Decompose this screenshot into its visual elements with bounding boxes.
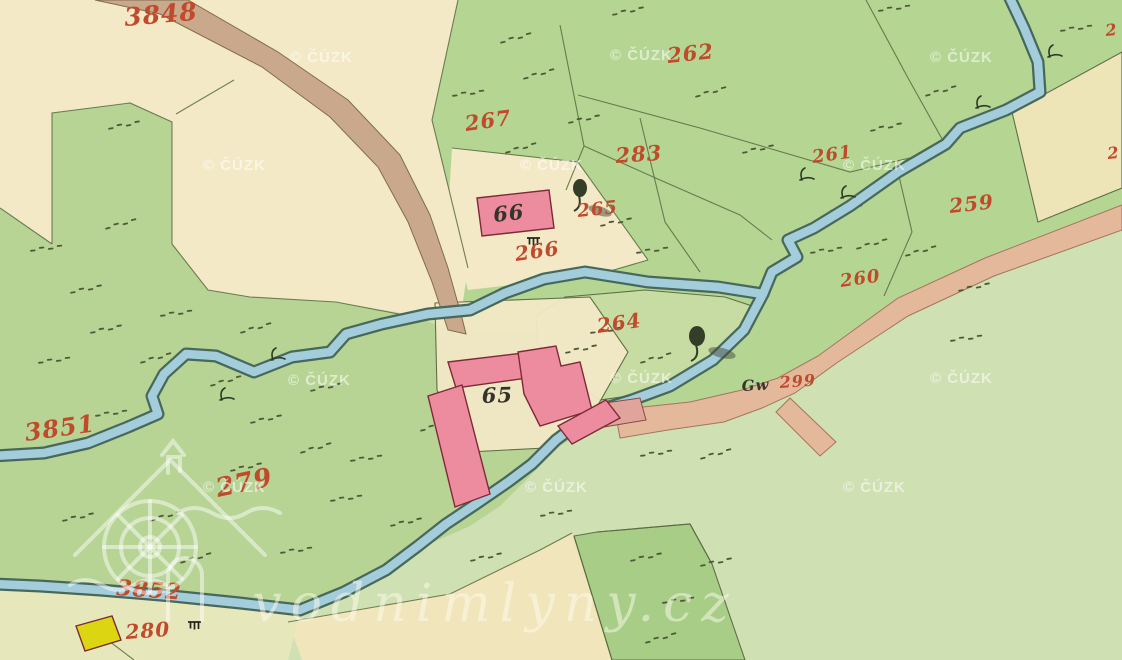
tree-icon	[573, 179, 587, 197]
site-watermark: vodnimlyny.cz	[252, 574, 737, 634]
parcel-label-259: 259	[947, 189, 995, 218]
parcel-label-280: 280	[124, 617, 171, 644]
gate-icon	[188, 622, 201, 630]
cuzk-watermark: © ČÚZK	[203, 156, 266, 174]
annotation-gw: Gw	[741, 376, 770, 395]
cuzk-watermark: © ČÚZK	[843, 156, 906, 174]
cuzk-watermark: © ČÚZK	[203, 478, 266, 496]
map-svg: 3848 262 267 283 261 259 265 266 260 264…	[0, 0, 1122, 660]
parcel-label-299: 299	[778, 370, 817, 392]
cuzk-watermark: © ČÚZK	[525, 478, 588, 496]
parcel-label-283: 283	[614, 140, 663, 168]
parcel-label-edge-right: 2	[1105, 143, 1120, 163]
cuzk-watermark: © ČÚZK	[843, 478, 906, 496]
cuzk-watermark: © ČÚZK	[610, 369, 673, 387]
cadastral-map-canvas[interactable]: 3848 262 267 283 261 259 265 266 260 264…	[0, 0, 1122, 660]
parcel-label-265: 265	[575, 197, 619, 222]
cuzk-watermark: © ČÚZK	[520, 156, 583, 174]
building-label-65: 65	[481, 382, 513, 408]
cuzk-watermark: © ČÚZK	[930, 369, 993, 387]
cuzk-watermark: © ČÚZK	[930, 48, 993, 66]
parcel-label-edge-top: 2	[1103, 20, 1118, 40]
cuzk-watermark: © ČÚZK	[288, 371, 351, 389]
tree-icon	[689, 326, 705, 346]
cuzk-watermark: © ČÚZK	[610, 46, 673, 64]
building-label-66: 66	[492, 199, 526, 227]
cuzk-watermark: © ČÚZK	[290, 48, 353, 66]
